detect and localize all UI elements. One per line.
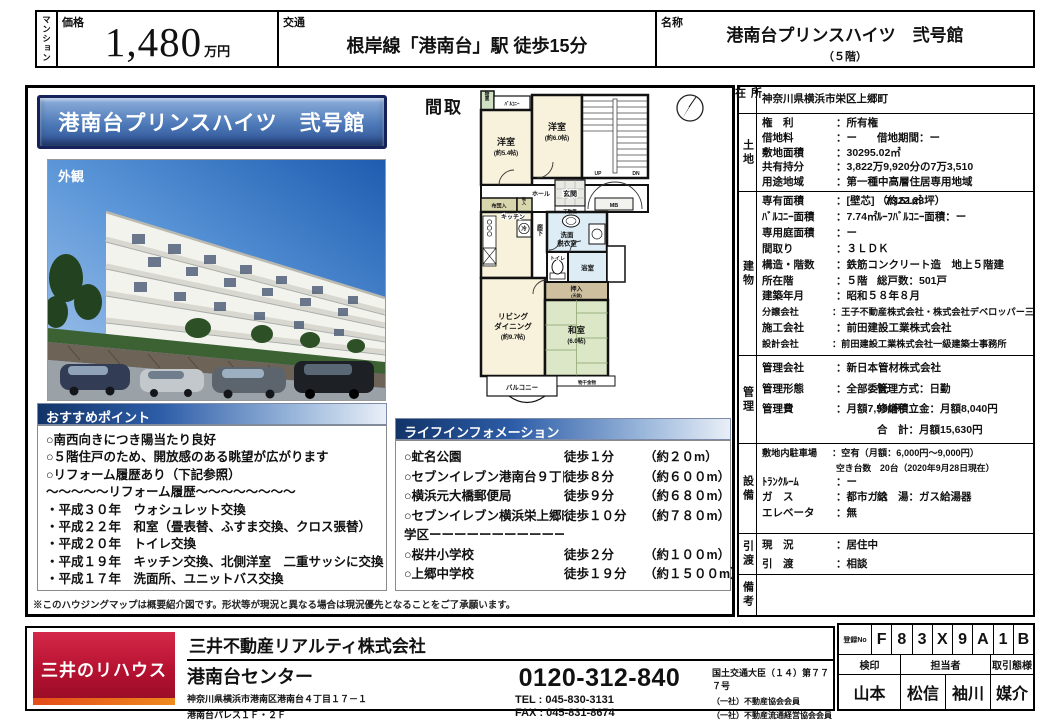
stamp-header: 検印 bbox=[839, 655, 901, 674]
detail-row: 施工会社：前田建設工業株式会社 bbox=[762, 321, 1028, 337]
transport-label: 交通 bbox=[283, 14, 305, 30]
detail-row: 神奈川県横浜市栄区上郷町 bbox=[762, 89, 1028, 110]
name-label: 名称 bbox=[661, 14, 683, 30]
detail-row: 専有面積：[壁芯] 73.51㎡（約22.23坪） bbox=[762, 194, 1028, 210]
registration-char: 3 bbox=[913, 625, 933, 654]
banner-text: 港南台プリンスハイツ 弐号館 bbox=[58, 107, 365, 137]
registration-char: X bbox=[933, 625, 953, 654]
point-item: ○南西向きにつき陽当たり良好 bbox=[46, 432, 378, 449]
property-floor: （５階） bbox=[657, 48, 1033, 64]
office-block: 港南台センター 神奈川県横浜市港南区港南台４丁目１７－１ 港南台パレス１Ｆ・２Ｆ bbox=[187, 661, 487, 720]
detail-row: ガ ス：都市ガス給 湯：ガス給湯器 bbox=[762, 490, 1028, 506]
staff-name: 袖川 bbox=[946, 675, 990, 709]
label-mb: MB bbox=[610, 203, 619, 209]
phone-block: 0120-312-840 TEL : 045-830-3131 FAX : 04… bbox=[487, 661, 712, 720]
registration-char: 1 bbox=[994, 625, 1014, 654]
transport-cell: 交通 根岸線「港南台」駅 徒歩15分 bbox=[277, 10, 657, 68]
section-management: 管理 管理会社：新日本管材株式会社管理形態：全部委託管理方式：日勤管理費：月額7… bbox=[739, 356, 1033, 444]
staff-name: 松信 bbox=[901, 675, 946, 709]
stamp-name: 山本 bbox=[839, 675, 901, 709]
membership-item: （一社）不動産流通経営協会会員 bbox=[712, 710, 833, 720]
registration-table: 登録No F83X9A1B 検印 担当者 取引態様 山本 松信袖川 媒介 bbox=[837, 623, 1035, 711]
license-number: 国土交通大臣（１４）第７７７号 bbox=[712, 666, 833, 692]
name-cell: 名称 港南台プリンスハイツ 弐号館 （５階） bbox=[655, 10, 1035, 68]
registration-char: 9 bbox=[953, 625, 973, 654]
detail-row: 管理費：月額7,590円修繕積立金：月額8,040円 bbox=[762, 399, 1028, 420]
fax-number: FAX : 045-831-8674 bbox=[487, 707, 712, 719]
label-washitsu: 和室 bbox=[568, 325, 586, 335]
registration-chars: F83X9A1B bbox=[872, 625, 1033, 654]
license-block: 国土交通大臣（１４）第７７７号 （一社）不動産協会会員（一社）不動産流通経営協会… bbox=[712, 661, 833, 720]
label-futon: 布団入 bbox=[490, 203, 506, 210]
mitsui-rehouse-logo: 三井のリハウス bbox=[33, 632, 175, 705]
point-item: ・平成１９年 キッチン交換、北側洋室 二重サッシに交換 bbox=[46, 554, 378, 571]
office-name: 港南台センター bbox=[187, 663, 487, 689]
detail-row: 引 渡：相談 bbox=[762, 555, 1028, 574]
property-banner: 港南台プリンスハイツ 弐号館 bbox=[37, 95, 387, 149]
membership-item: （一社）不動産協会会員 bbox=[712, 696, 833, 707]
lifeinfo-item: ○セブンイレブン港南台９丁目店徒歩８分（約６００m） bbox=[404, 468, 722, 488]
transaction-type-value: 媒介 bbox=[991, 675, 1033, 709]
detail-row: 専用庭面積：ー bbox=[762, 226, 1028, 242]
staff-value-row: 山本 松信袖川 媒介 bbox=[839, 675, 1033, 709]
exterior-photo-art bbox=[48, 160, 385, 400]
detail-row: エレベータ：無 bbox=[762, 506, 1028, 522]
detail-row: 権 利：所有権 bbox=[762, 116, 1028, 131]
property-name: 港南台プリンスハイツ 弐号館 bbox=[657, 21, 1033, 46]
transaction-type-header: 取引態様 bbox=[991, 655, 1033, 674]
tel-number: TEL : 045-830-3131 bbox=[487, 694, 712, 706]
points-list: ○南西向きにつき陽当たり良好 ○５階住戸のため、開放感のある眺望が広がります ○… bbox=[37, 425, 387, 591]
label-shoebox: 下駄箱 bbox=[563, 208, 577, 215]
lifeinfo-list: ○虻名公園徒歩１分（約２０m） ○セブンイレブン港南台９丁目店徒歩８分（約６００… bbox=[395, 440, 731, 591]
price-value: 1,480万円 bbox=[58, 18, 277, 66]
registration-char: A bbox=[973, 625, 993, 654]
point-item: ・平成１７年 洗面所、ユニットバス交換 bbox=[46, 571, 378, 588]
point-item: ○リフォーム履歴あり（下記参照） bbox=[46, 467, 378, 484]
detail-row: 間取り：３ＬＤＫ bbox=[762, 242, 1028, 258]
label-bath: 浴室 bbox=[581, 263, 595, 272]
label-mono: 物入 bbox=[521, 195, 527, 205]
point-item: ・平成２０年 トイレ交換 bbox=[46, 536, 378, 553]
detail-row: 管理会社：新日本管材株式会社 bbox=[762, 358, 1028, 379]
label-kitchen: キッチン bbox=[501, 214, 525, 221]
staff-names: 松信袖川 bbox=[901, 675, 991, 709]
detail-row: 借地料：ー借地期間：ー bbox=[762, 131, 1028, 146]
property-details-table: 所在 神奈川県横浜市栄区上郷町 土地 権 利：所有権借地料：ー借地期間：ー敷地面… bbox=[737, 85, 1035, 617]
detail-row: 分譲会社：王子不動産株式会社・株式会社デベロッパー三信 bbox=[762, 305, 1028, 321]
transport-value: 根岸線「港南台」駅 徒歩15分 bbox=[279, 32, 655, 58]
logo-orange-strip bbox=[33, 698, 175, 705]
detail-row: 管理形態：全部委託管理方式：日勤 bbox=[762, 379, 1028, 400]
label-corridor: 廊下 bbox=[536, 223, 543, 237]
floorplan: 物置 ﾊﾞﾙｺﾆｰ 洋室 (約5.4帖) 洋室 (約6.0帖) UP DN ホー… bbox=[437, 88, 733, 463]
section-location: 所在 神奈川県横浜市栄区上郷町 bbox=[739, 87, 1033, 114]
section-land: 土地 権 利：所有権借地料：ー借地期間：ー敷地面積：30295.02㎡共有持分：… bbox=[739, 114, 1033, 192]
point-item: ・平成３０年 ウォシュレット交換 bbox=[46, 502, 378, 519]
section-remarks: 備考 bbox=[739, 575, 1033, 615]
detail-row: 現 況：居住中 bbox=[762, 536, 1028, 555]
label-fridge: 冷 bbox=[521, 225, 527, 233]
label-washitsu-size: (6.0帖) bbox=[567, 337, 585, 345]
price-unit: 万円 bbox=[204, 44, 230, 59]
lifeinfo-header: ライフインフォメーション bbox=[395, 418, 731, 440]
logo-text: 三井のリハウス bbox=[41, 656, 167, 681]
price-cell: 価格 1,480万円 bbox=[56, 10, 279, 68]
header: マンション 価格 1,480万円 交通 根岸線「港南台」駅 徒歩15分 名称 港… bbox=[35, 10, 1035, 68]
label-wash1: 洗面 bbox=[561, 230, 575, 239]
detail-row: ﾄﾗﾝｸﾙｰﾑ：ー bbox=[762, 475, 1028, 491]
label-storage: 物置 bbox=[484, 90, 490, 102]
lifeinfo-item: ○上郷中学校徒歩１９分（約１５００m） bbox=[404, 565, 722, 585]
label-living3: (約9.7帖) bbox=[501, 333, 525, 341]
label-dn: DN bbox=[632, 171, 640, 177]
photo-label: 外観 bbox=[58, 166, 84, 185]
registration-char: B bbox=[1014, 625, 1033, 654]
label-up: UP bbox=[595, 171, 603, 177]
label-living1: リビング bbox=[498, 311, 528, 321]
label-oshiire: 押入 bbox=[570, 285, 582, 293]
label-hall: ホール bbox=[532, 191, 550, 198]
label-balcony-bottom: バルコニー bbox=[506, 384, 538, 392]
point-item: ○５階住戸のため、開放感のある眺望が広がります bbox=[46, 449, 378, 466]
floorplan-drawing: 物置 ﾊﾞﾙｺﾆｰ 洋室 (約5.4帖) 洋室 (約6.0帖) UP DN ホー… bbox=[437, 88, 733, 463]
lifeinfo-item: ○桜井小学校徒歩２分（約１００m） bbox=[404, 546, 722, 566]
flyer-page: マンション 価格 1,480万円 交通 根岸線「港南台」駅 徒歩15分 名称 港… bbox=[0, 0, 1040, 720]
label-wash2: 脱衣室 bbox=[557, 239, 577, 248]
toll-free-number: 0120-312-840 bbox=[487, 664, 712, 693]
exterior-photo: 外観 bbox=[48, 160, 385, 400]
label-oshiire-sub: (天袋) bbox=[571, 292, 582, 298]
main-panel: 港南台プリンスハイツ 弐号館 bbox=[25, 85, 735, 617]
label-entrance: 玄関 bbox=[563, 189, 577, 198]
lifeinfo-item: ○セブンイレブン横浜栄上郷町店徒歩１０分（約７８０m） bbox=[404, 507, 722, 527]
label-western2-size: (約6.0帖) bbox=[545, 134, 569, 142]
points-header: おすすめポイント bbox=[37, 403, 387, 425]
detail-row: 設計会社：前田建設工業株式会社一級建築士事務所 bbox=[762, 337, 1028, 353]
label-western1: 洋室 bbox=[497, 136, 515, 147]
membership-list: （一社）不動産協会会員（一社）不動産流通経営協会会員（公社）首都圏不動産公正取引… bbox=[712, 696, 833, 720]
registration-char: F bbox=[872, 625, 892, 654]
section-building: 建物 専有面積：[壁芯] 73.51㎡（約22.23坪）ﾊﾞﾙｺﾆｰ面積：7.7… bbox=[739, 192, 1033, 356]
map-disclaimer: ※このハウジングマップは概要紹介図です。形状等が現況と異なる場合は現況優先となる… bbox=[33, 597, 515, 611]
detail-row: 共有持分：3,822万9,920分の7万3,510 bbox=[762, 160, 1028, 175]
property-category-label: マンション bbox=[41, 15, 53, 63]
detail-row: 建築年月：昭和５８年８月 bbox=[762, 289, 1028, 305]
section-facilities: 設備 敷地内駐車場：空有（月額：6,000円～9,000円）空き台数 20台（2… bbox=[739, 444, 1033, 534]
footer-info: 三井不動産リアルティ株式会社 港南台センター 神奈川県横浜市港南区港南台４丁目１… bbox=[175, 628, 833, 709]
detail-row: 敷地内駐車場：空有（月額：6,000円～9,000円）空き台数 20台（2020… bbox=[762, 446, 1028, 475]
staff-header: 担当者 bbox=[901, 655, 991, 674]
detail-row: ﾊﾞﾙｺﾆｰ面積：7.74㎡ﾙｰﾌﾊﾞﾙｺﾆｰ面積：ー bbox=[762, 210, 1028, 226]
detail-row: 所在階：５階総戸数：501戸 bbox=[762, 274, 1028, 290]
north-arrow-icon bbox=[677, 95, 703, 121]
label-western1-size: (約5.4帖) bbox=[494, 149, 518, 157]
footer: 三井のリハウス 三井不動産リアルティ株式会社 港南台センター 神奈川県横浜市港南… bbox=[25, 626, 835, 711]
office-address-2: 港南台パレス１Ｆ・２Ｆ bbox=[187, 708, 487, 720]
property-category-tab: マンション bbox=[35, 10, 58, 68]
registration-label: 登録No bbox=[839, 625, 872, 654]
detail-row: 用途地域：第一種中高層住居専用地域 bbox=[762, 175, 1028, 190]
office-address-1: 神奈川県横浜市港南区港南台４丁目１７－１ bbox=[187, 692, 487, 705]
label-living2: ダイニング bbox=[494, 321, 532, 331]
point-item: ～～～～～リフォーム履歴～～～～～～～～ bbox=[46, 484, 378, 501]
label-western2: 洋室 bbox=[548, 121, 566, 132]
label-balcony-top: ﾊﾞﾙｺﾆｰ bbox=[503, 101, 520, 108]
company-name: 三井不動産リアルティ株式会社 bbox=[187, 628, 833, 661]
detail-row: 構造・階数：鉄筋コンクリート造 地上５階建 bbox=[762, 258, 1028, 274]
registration-char: 8 bbox=[892, 625, 912, 654]
label-toilet: トイレ bbox=[550, 256, 565, 262]
label-hanger: 物干金物 bbox=[578, 379, 596, 386]
point-item: ・平成２２年 和室（畳表替、ふすま交換、クロス張替） bbox=[46, 519, 378, 536]
lifeinfo-item: 学区ーーーーーーーーーーーーーーーーーー bbox=[404, 526, 722, 546]
lifeinfo-item: ○横浜元大橋郵便局徒歩９分（約６８０m） bbox=[404, 487, 722, 507]
staff-header-row: 検印 担当者 取引態様 bbox=[839, 655, 1033, 675]
section-handover: 引渡 現 況：居住中引 渡：相談 bbox=[739, 534, 1033, 575]
detail-row: 敷地面積：30295.02㎡ bbox=[762, 146, 1028, 161]
registration-number-row: 登録No F83X9A1B bbox=[839, 625, 1033, 655]
lifeinfo-item: ○虻名公園徒歩１分（約２０m） bbox=[404, 448, 722, 468]
